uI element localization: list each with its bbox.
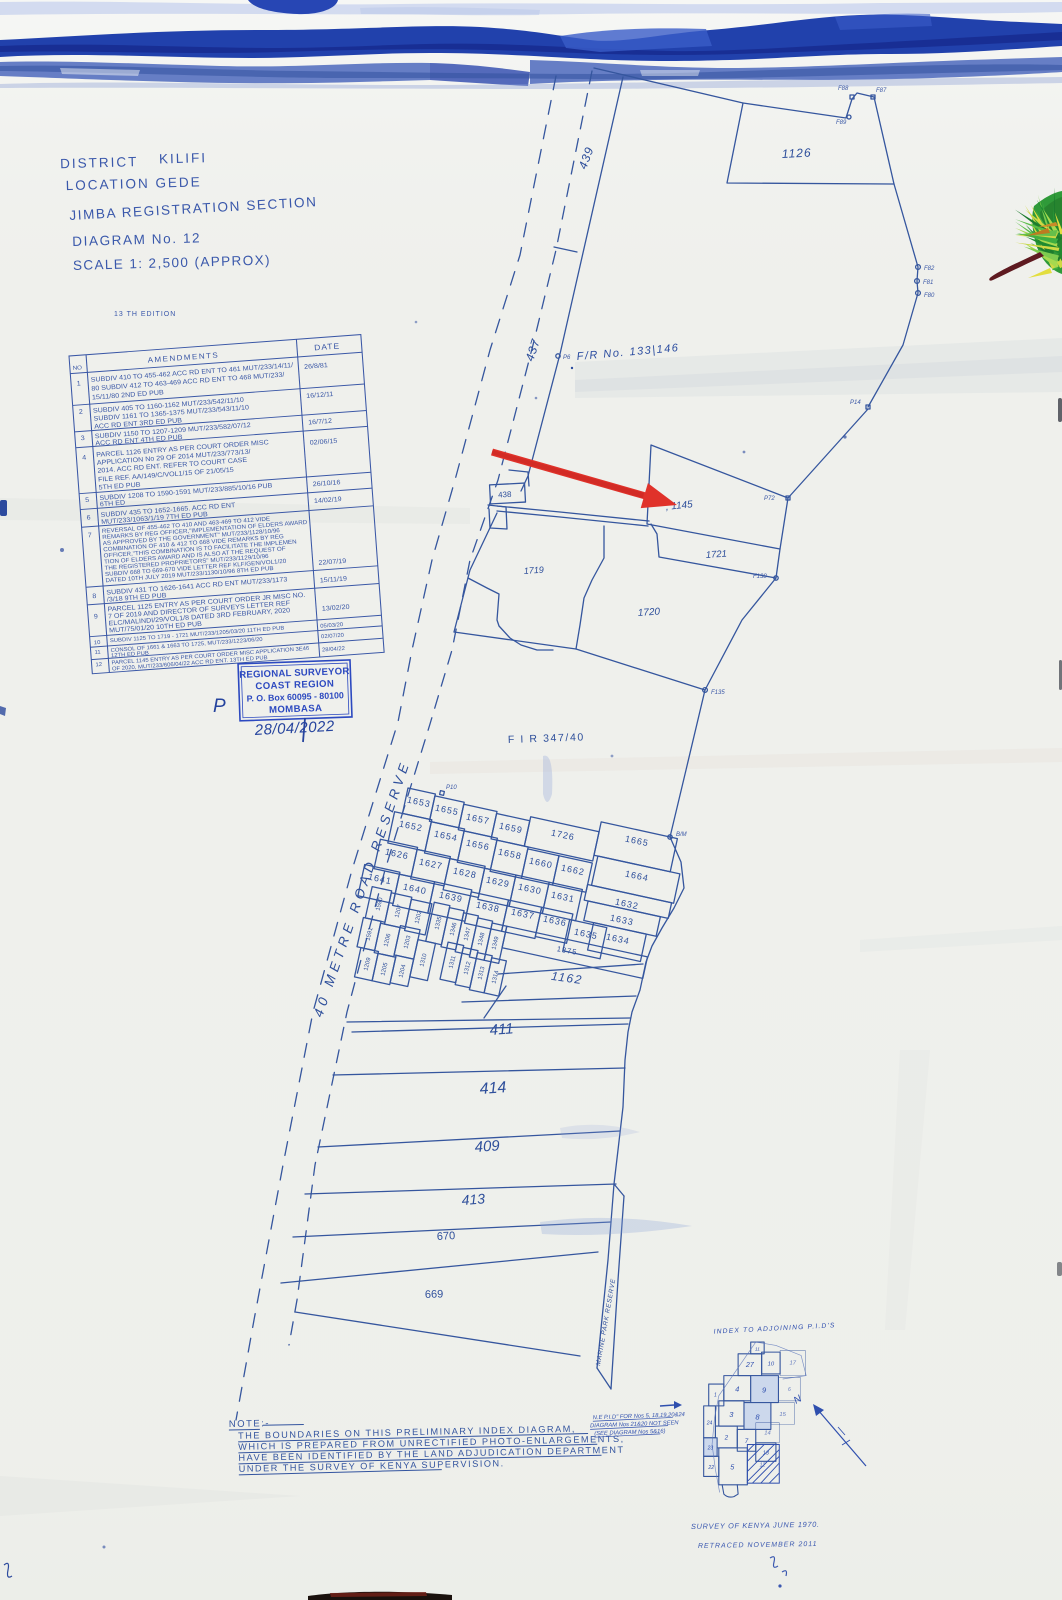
- svg-text:1: 1: [77, 380, 82, 387]
- svg-text:9: 9: [94, 613, 99, 620]
- svg-text:F135: F135: [711, 690, 725, 696]
- svg-text:2: 2: [724, 1434, 729, 1441]
- svg-text:23: 23: [707, 1446, 714, 1452]
- svg-text:2: 2: [79, 409, 84, 416]
- svg-text:NO: NO: [73, 365, 83, 371]
- svg-text:3: 3: [81, 435, 86, 442]
- svg-text:KILIFI: KILIFI: [159, 150, 207, 166]
- svg-text:1719: 1719: [523, 565, 544, 576]
- svg-text:11: 11: [94, 650, 101, 656]
- svg-text:438: 438: [498, 490, 512, 500]
- svg-text:DISTRICT: DISTRICT: [60, 154, 139, 171]
- svg-text:11: 11: [755, 1346, 760, 1351]
- svg-text:17: 17: [789, 1361, 796, 1367]
- svg-text:4: 4: [735, 1385, 739, 1394]
- svg-text:10: 10: [94, 640, 101, 646]
- svg-text:P14: P14: [850, 400, 861, 406]
- svg-text:13 TH EDITION: 13 TH EDITION: [114, 311, 176, 318]
- svg-text:6: 6: [788, 1387, 791, 1393]
- svg-text:P: P: [213, 696, 226, 717]
- svg-text:P72: P72: [764, 496, 775, 502]
- svg-text:MOMBASA: MOMBASA: [269, 703, 323, 716]
- svg-text:F82: F82: [924, 266, 935, 272]
- svg-text:F88: F88: [838, 86, 849, 92]
- svg-text:B/M: B/M: [676, 832, 687, 838]
- svg-text:F89: F89: [836, 120, 847, 126]
- svg-text:6: 6: [86, 515, 91, 522]
- svg-text:22: 22: [707, 1465, 714, 1471]
- svg-text:413: 413: [461, 1190, 486, 1208]
- svg-text:7: 7: [745, 1438, 749, 1445]
- svg-text:12: 12: [95, 662, 102, 668]
- svg-text:1720: 1720: [637, 606, 660, 619]
- svg-text:F81: F81: [923, 280, 933, 286]
- svg-text:1126: 1126: [781, 145, 812, 161]
- svg-text:5: 5: [85, 497, 90, 504]
- svg-text:F138: F138: [753, 574, 767, 580]
- svg-text:10: 10: [768, 1362, 775, 1368]
- svg-text:13: 13: [763, 1451, 769, 1457]
- svg-text:5: 5: [730, 1464, 734, 1472]
- svg-text:12: 12: [760, 1462, 766, 1468]
- svg-text:14: 14: [764, 1430, 771, 1436]
- svg-text:P6: P6: [563, 355, 571, 361]
- svg-text:670: 670: [437, 1230, 456, 1243]
- svg-text:411: 411: [489, 1020, 514, 1039]
- svg-text:F80: F80: [924, 293, 935, 299]
- svg-text:1721: 1721: [705, 549, 727, 561]
- svg-text:8: 8: [92, 593, 97, 600]
- svg-text:15: 15: [779, 1412, 786, 1418]
- svg-text:7: 7: [88, 532, 93, 539]
- svg-text:NOTE:-: NOTE:-: [229, 1418, 270, 1430]
- svg-text:F87: F87: [876, 88, 887, 94]
- svg-text:1: 1: [714, 1393, 717, 1399]
- svg-text:669: 669: [425, 1288, 444, 1301]
- svg-text:27: 27: [745, 1361, 755, 1369]
- svg-text:409: 409: [474, 1137, 501, 1156]
- svg-text:24: 24: [706, 1420, 713, 1426]
- svg-text:4: 4: [82, 455, 87, 462]
- svg-text:P10: P10: [446, 785, 457, 791]
- svg-text:414: 414: [479, 1079, 507, 1098]
